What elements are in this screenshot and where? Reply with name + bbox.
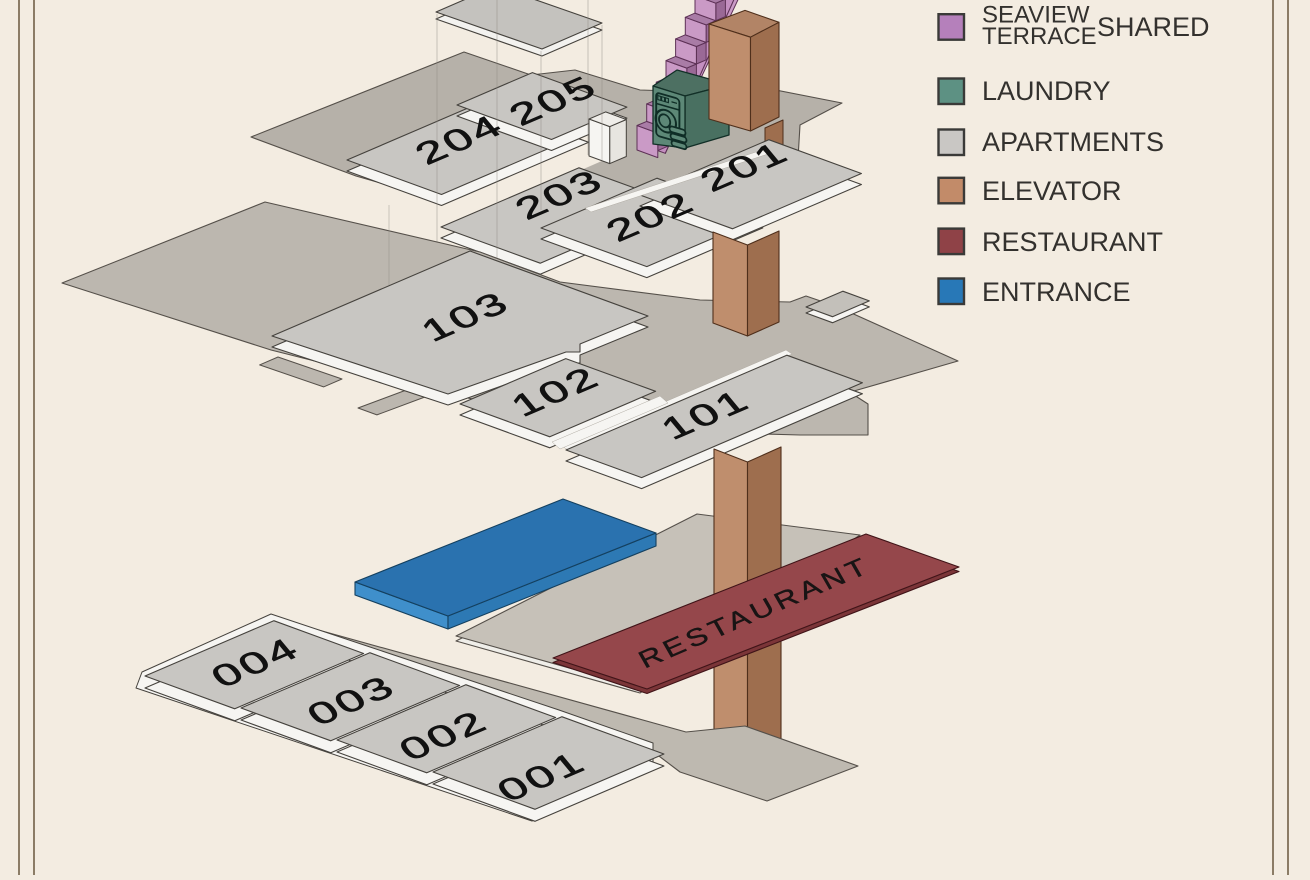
svg-text:APARTMENTS: APARTMENTS	[982, 127, 1164, 157]
svg-text:TERRACE: TERRACE	[982, 23, 1097, 50]
svg-text:SHARED: SHARED	[1097, 12, 1210, 42]
svg-text:RESTAURANT: RESTAURANT	[982, 227, 1163, 257]
svg-text:ELEVATOR: ELEVATOR	[982, 176, 1122, 206]
svg-text:LAUNDRY: LAUNDRY	[982, 76, 1111, 106]
svg-text:ENTRANCE: ENTRANCE	[982, 277, 1131, 307]
